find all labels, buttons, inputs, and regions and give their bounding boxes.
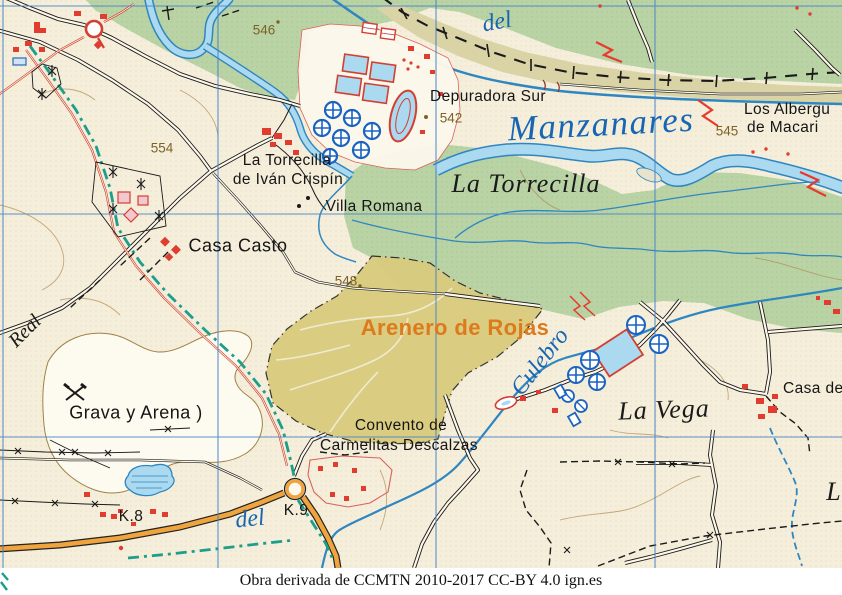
map-edge-mark xyxy=(0,570,12,594)
topographic-map-screenshot: 546554542545548Depuradora SurLa Torrecil… xyxy=(0,0,842,595)
roundabout-north xyxy=(86,21,102,37)
map-graphics xyxy=(0,0,842,568)
blue-building xyxy=(13,58,26,65)
attribution-text: Obra derivada de CCMTN 2010-2017 CC-BY 4… xyxy=(0,571,842,590)
attribution-strip: Obra derivada de CCMTN 2010-2017 CC-BY 4… xyxy=(0,568,842,595)
map-canvas: 546554542545548Depuradora SurLa Torrecil… xyxy=(0,0,842,568)
